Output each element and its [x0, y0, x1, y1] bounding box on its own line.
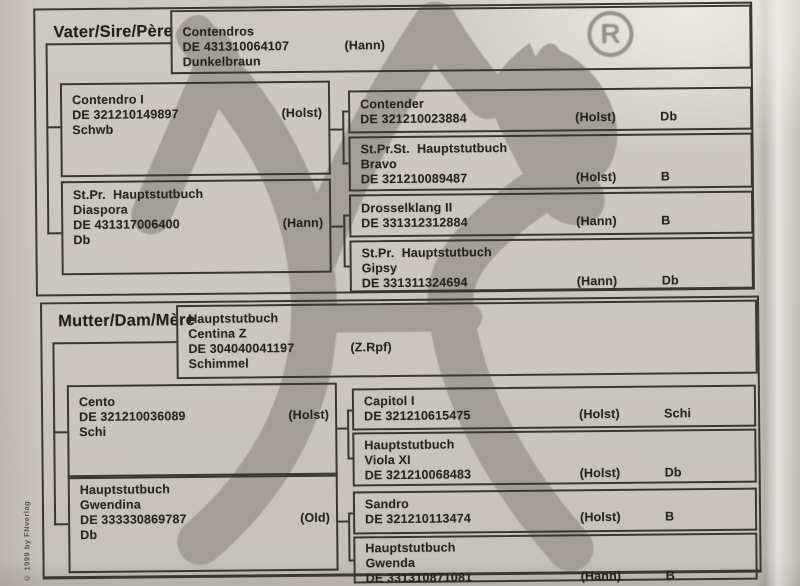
horse-color: Schwb — [62, 121, 328, 139]
connector-line — [330, 129, 342, 131]
horse-registry: (Holst) — [580, 466, 621, 481]
pedigree-cell-sire: Contendros DE 431310064107(Hann) Dunkelb… — [170, 5, 752, 75]
horse-registry: (Hann) — [344, 38, 385, 53]
horse-registry: (Holst) — [575, 110, 616, 125]
pedigree-cell-dam-dam-dam: Hauptstutbuch Gwenda DE 331310871081(Han… — [353, 533, 757, 584]
horse-id: DE 331310871081 — [366, 570, 473, 585]
horse-id: DE 321210113474 — [365, 511, 471, 526]
sire-section-header: Vater/Sire/Père — [53, 22, 173, 42]
horse-registry: (Holst) — [281, 106, 322, 121]
horse-registry: (Holst) — [579, 407, 620, 422]
horse-color-code: Db — [662, 273, 679, 288]
pedigree-cell-sire-sire-sire: Contender DE 321210023884(Holst)Db — [348, 87, 752, 134]
copyright-text: © 1999 by FNverlag — [22, 491, 32, 583]
connector-line — [54, 523, 68, 525]
horse-id: DE 431310064107 — [182, 39, 289, 54]
horse-color-code: B — [661, 169, 670, 184]
pedigree-cell-sire-dam-dam: St.Pr. Hauptstutbuch Gipsy DE 3313113246… — [349, 237, 753, 293]
horse-id-line: DE 321210023884(Holst)Db — [350, 109, 750, 128]
horse-color-code: B — [665, 509, 674, 524]
horse-color-code: B — [666, 568, 675, 583]
horse-id: DE 331311324694 — [362, 275, 468, 290]
horse-id-line: DE 321210113474(Holst)B — [355, 509, 755, 528]
pedigree-certificate-photo: R Vater/Sire/Père Contendros DE 43131006… — [0, 0, 800, 586]
horse-color-code: B — [661, 213, 670, 228]
pedigree-cell-dam-dam-sire: Sandro DE 321210113474(Holst)B — [353, 488, 757, 535]
horse-registry: (Holst) — [580, 510, 621, 525]
horse-color-code: Db — [660, 109, 677, 124]
horse-id: DE 321210089487 — [361, 171, 468, 186]
pedigree-cell-dam-sire-sire: Capitol I DE 321210615475(Holst)Schi — [352, 385, 756, 431]
connector-line — [337, 428, 347, 430]
sire-header-rest: /Sire/Père — [95, 22, 173, 41]
horse-registry: (Holst) — [576, 170, 617, 185]
horse-id: DE 321210023884 — [360, 111, 467, 126]
horse-id: DE 321210149897 — [72, 107, 179, 122]
horse-color-code: Db — [665, 465, 682, 480]
horse-color: Db — [63, 231, 329, 249]
horse-id-line: DE 321210068483(Holst)Db — [355, 465, 755, 484]
connector-line — [53, 431, 67, 433]
horse-id-line: DE 321210615475(Holst)Schi — [354, 406, 754, 425]
horse-id-line: DE 321210089487(Holst)B — [351, 169, 751, 188]
pedigree-cell-dam-dam: Hauptstutbuch Gwendina DE 333330869787(O… — [68, 473, 339, 574]
horse-registry: (Hann) — [576, 214, 617, 229]
horse-id: DE 321210615475 — [364, 408, 471, 423]
horse-id: DE 321210036089 — [79, 409, 186, 424]
connector-line — [47, 232, 61, 234]
horse-registry: (Hann) — [581, 569, 622, 584]
pedigree-cell-dam-sire-dam: Hauptstutbuch Viola XI DE 321210068483(H… — [352, 429, 756, 487]
pedigree-cell-sire-dam: St.Pr. Hauptstutbuch Diaspora DE 4313170… — [61, 179, 332, 276]
dam-header-bold: Mutter — [58, 312, 110, 330]
horse-registry: (Hann) — [283, 216, 324, 231]
horse-id: DE 431317006400 — [73, 217, 180, 232]
connector-line — [338, 521, 348, 523]
pedigree-cell-sire-sire: Contendro I DE 321210149897(Holst) Schwb — [60, 81, 331, 178]
horse-color: Schi — [69, 423, 335, 441]
horse-registry: (Hann) — [577, 274, 618, 289]
horse-id-line: DE 331312312884(Hann)B — [351, 213, 751, 232]
pedigree-cell-sire-dam-sire: Drosselklang II DE 331312312884(Hann)B — [349, 191, 753, 238]
sire-header-bold: Vater — [53, 23, 95, 41]
horse-color: Db — [70, 526, 336, 544]
pedigree-cell-dam-sire: Cento DE 321210036089(Holst) Schi — [67, 383, 338, 480]
document: R Vater/Sire/Père Contendros DE 43131006… — [0, 0, 800, 586]
pedigree-cell-sire-sire-dam: St.Pr.St. Hauptstutbuch Bravo DE 3212100… — [348, 133, 753, 192]
connector-line — [46, 126, 60, 128]
horse-id: DE 333330869787 — [80, 512, 187, 527]
pedigree-cell-dam: Hauptstutbuch Centina Z DE 304040041197(… — [176, 300, 758, 380]
horse-registry: (Old) — [300, 511, 330, 526]
dam-section-header: Mutter/Dam/Mère — [58, 311, 195, 331]
horse-id: DE 304040041197 — [188, 341, 294, 356]
horse-color-code: Schi — [664, 406, 691, 421]
horse-id: DE 331312312884 — [361, 215, 468, 230]
horse-registry: (Z.Rpf) — [350, 340, 391, 355]
horse-registry: (Holst) — [288, 408, 329, 423]
horse-id-line: DE 331311324694(Hann)Db — [352, 273, 752, 292]
connector-line — [331, 226, 343, 228]
horse-id: DE 321210068483 — [365, 467, 472, 482]
horse-id-line: DE 331310871081(Hann)B — [356, 568, 756, 586]
